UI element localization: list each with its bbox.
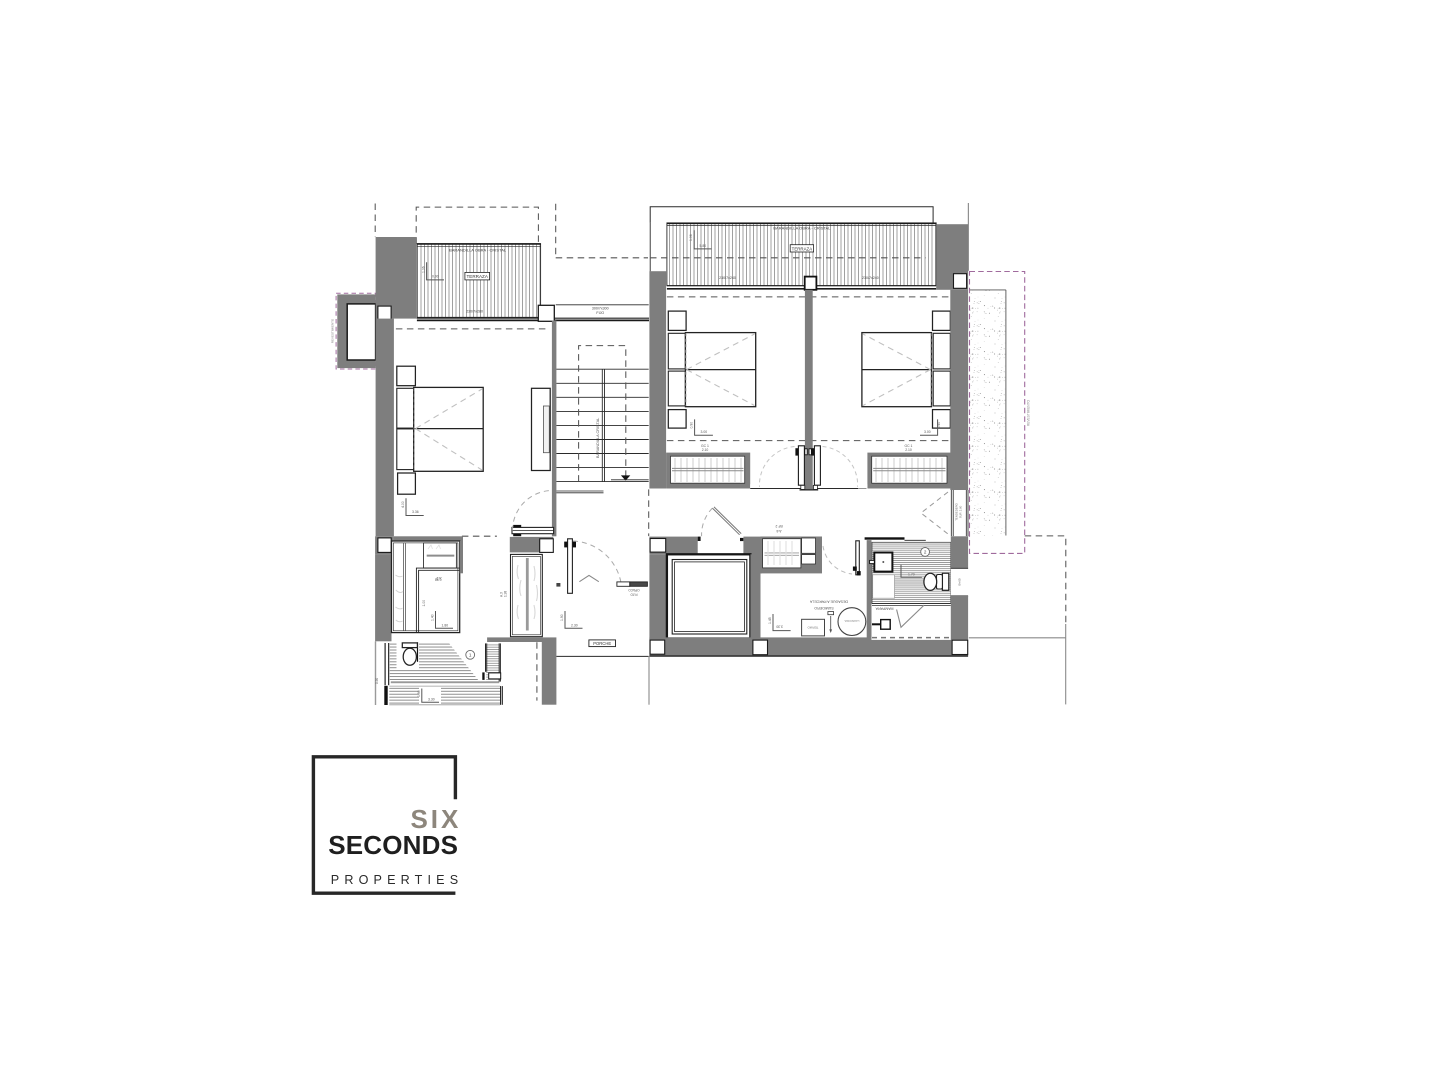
svg-text:SUMIDERO: SUMIDERO	[814, 606, 834, 610]
svg-text:1.80: 1.80	[442, 623, 449, 627]
svg-text:0.90: 0.90	[690, 422, 694, 429]
svg-text:REVESTIMIENTO: REVESTIMIENTO	[330, 318, 334, 343]
svg-text:BARANDILLA CRISTAL: BARANDILLA CRISTAL	[596, 418, 600, 458]
svg-text:1.00: 1.00	[422, 600, 426, 607]
svg-text:2.10: 2.10	[702, 448, 709, 452]
svg-text:4.00: 4.00	[401, 501, 405, 508]
svg-text:OPACO: OPACO	[628, 588, 640, 592]
svg-text:230/7x240: 230/7x240	[719, 276, 736, 280]
svg-text:0.90: 0.90	[937, 422, 941, 429]
svg-text:BF 2: BF 2	[775, 524, 782, 528]
svg-text:230/7x240: 230/7x240	[862, 276, 879, 280]
svg-text:DESAGUE A PARCELA: DESAGUE A PARCELA	[809, 600, 848, 604]
svg-text:1.06: 1.06	[689, 234, 693, 241]
svg-text:1.06: 1.06	[422, 266, 426, 273]
svg-text:300/7x300: 300/7x300	[592, 307, 609, 311]
svg-text:3.30: 3.30	[776, 625, 783, 629]
svg-text:3.00: 3.00	[924, 430, 931, 434]
svg-text:A.6: A.6	[776, 529, 781, 533]
svg-text:TERMO: TERMO	[807, 625, 818, 629]
svg-text:1.45: 1.45	[768, 617, 772, 624]
svg-text:BARANDILLA OBRA - CRISTAL: BARANDILLA OBRA - CRISTAL	[449, 248, 507, 253]
svg-text:230/7x280: 230/7x280	[466, 309, 483, 313]
svg-text:1: 1	[469, 653, 472, 658]
svg-text:1.70: 1.70	[908, 572, 915, 576]
svg-text:PORCHE: PORCHE	[593, 641, 611, 646]
svg-text:0.90: 0.90	[375, 678, 379, 684]
svg-text:1.90: 1.90	[560, 614, 564, 621]
svg-text:3.00: 3.00	[701, 430, 708, 434]
svg-text:2.30: 2.30	[571, 623, 578, 627]
svg-text:MAMPARA: MAMPARA	[875, 606, 894, 610]
svg-text:FIJO: FIJO	[596, 311, 604, 315]
svg-text:PROPERTIES: PROPERTIES	[331, 873, 463, 887]
svg-text:TERRAZA: TERRAZA	[466, 274, 488, 279]
svg-text:0.88: 0.88	[435, 578, 442, 582]
svg-text:BARANDILLA OBRA - CRISTAL: BARANDILLA OBRA - CRISTAL	[773, 226, 831, 231]
svg-text:2: 2	[924, 550, 927, 555]
svg-text:1.90: 1.90	[417, 690, 421, 697]
svg-text:2.10: 2.10	[905, 448, 912, 452]
svg-text:TERRAZA: TERRAZA	[792, 246, 813, 251]
svg-text:0.90: 0.90	[432, 275, 439, 279]
svg-text:3.30: 3.30	[428, 698, 435, 702]
svg-text:REVESTIMIENTO: REVESTIMIENTO	[1027, 399, 1031, 425]
svg-text:3.36: 3.36	[412, 510, 419, 514]
svg-text:1.98: 1.98	[504, 591, 508, 597]
svg-text:SECONDS: SECONDS	[328, 830, 458, 860]
svg-text:B+60: B+60	[958, 578, 962, 585]
svg-text:LAVADORA: LAVADORA	[844, 619, 859, 623]
svg-text:FIJO: FIJO	[630, 592, 637, 596]
svg-text:SUP. 2.60: SUP. 2.60	[959, 505, 963, 518]
svg-text:1.40: 1.40	[431, 614, 435, 621]
svg-text:5.80: 5.80	[700, 244, 707, 248]
